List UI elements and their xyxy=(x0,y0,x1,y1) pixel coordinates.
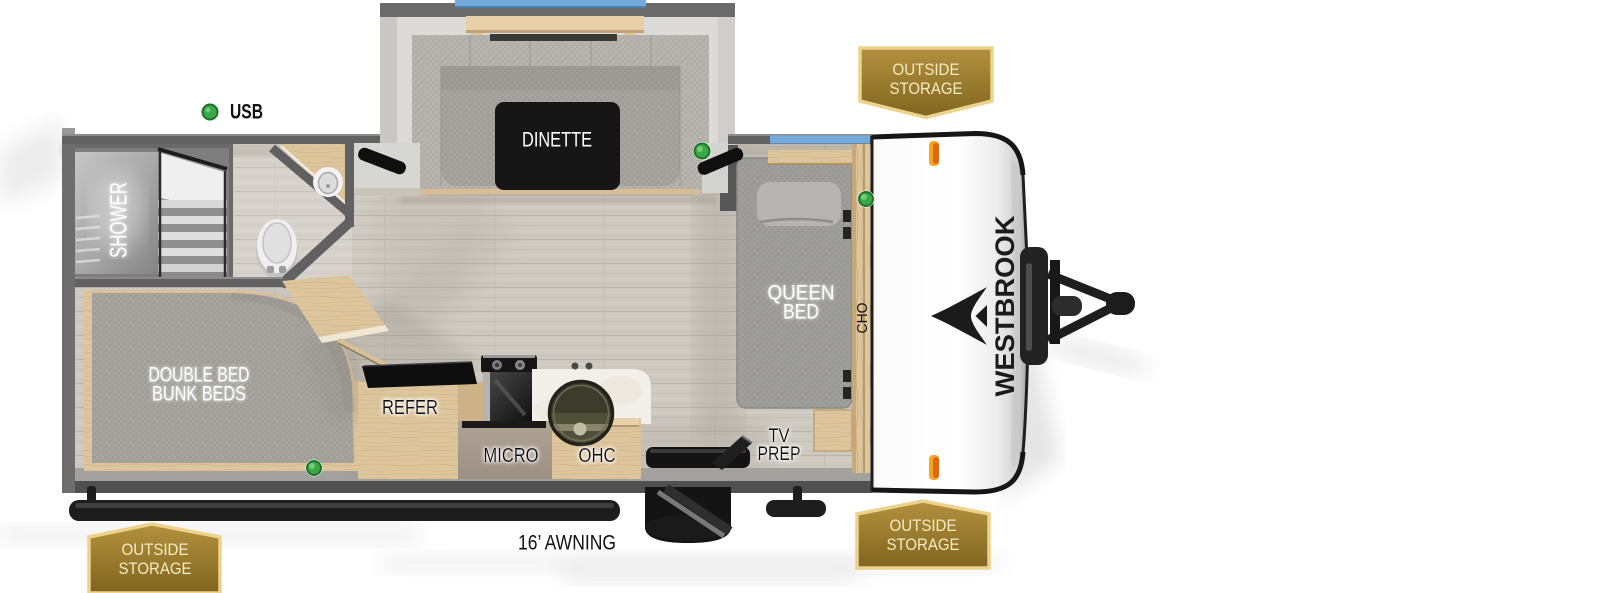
svg-text:CHO: CHO xyxy=(855,303,871,334)
svg-text:STORAGE: STORAGE xyxy=(119,560,192,578)
svg-text:SHOWER: SHOWER xyxy=(106,182,133,258)
svg-text:BED: BED xyxy=(783,301,819,324)
svg-text:DINETTE: DINETTE xyxy=(522,129,592,152)
svg-text:MICRO: MICRO xyxy=(484,445,539,467)
svg-text:OHC: OHC xyxy=(579,445,616,467)
svg-text:16’ AWNING: 16’ AWNING xyxy=(518,532,616,555)
svg-text:STORAGE: STORAGE xyxy=(890,80,963,98)
svg-text:WESTBROOK: WESTBROOK xyxy=(990,215,1020,397)
svg-text:PREP: PREP xyxy=(758,443,801,465)
svg-text:BUNK BEDS: BUNK BEDS xyxy=(152,383,246,406)
svg-text:OUTSIDE: OUTSIDE xyxy=(893,61,960,79)
svg-text:OUTSIDE: OUTSIDE xyxy=(890,517,957,535)
svg-text:OUTSIDE: OUTSIDE xyxy=(122,541,189,559)
svg-text:STORAGE: STORAGE xyxy=(887,536,960,554)
svg-text:USB: USB xyxy=(230,101,263,124)
svg-text:REFER: REFER xyxy=(382,397,438,419)
